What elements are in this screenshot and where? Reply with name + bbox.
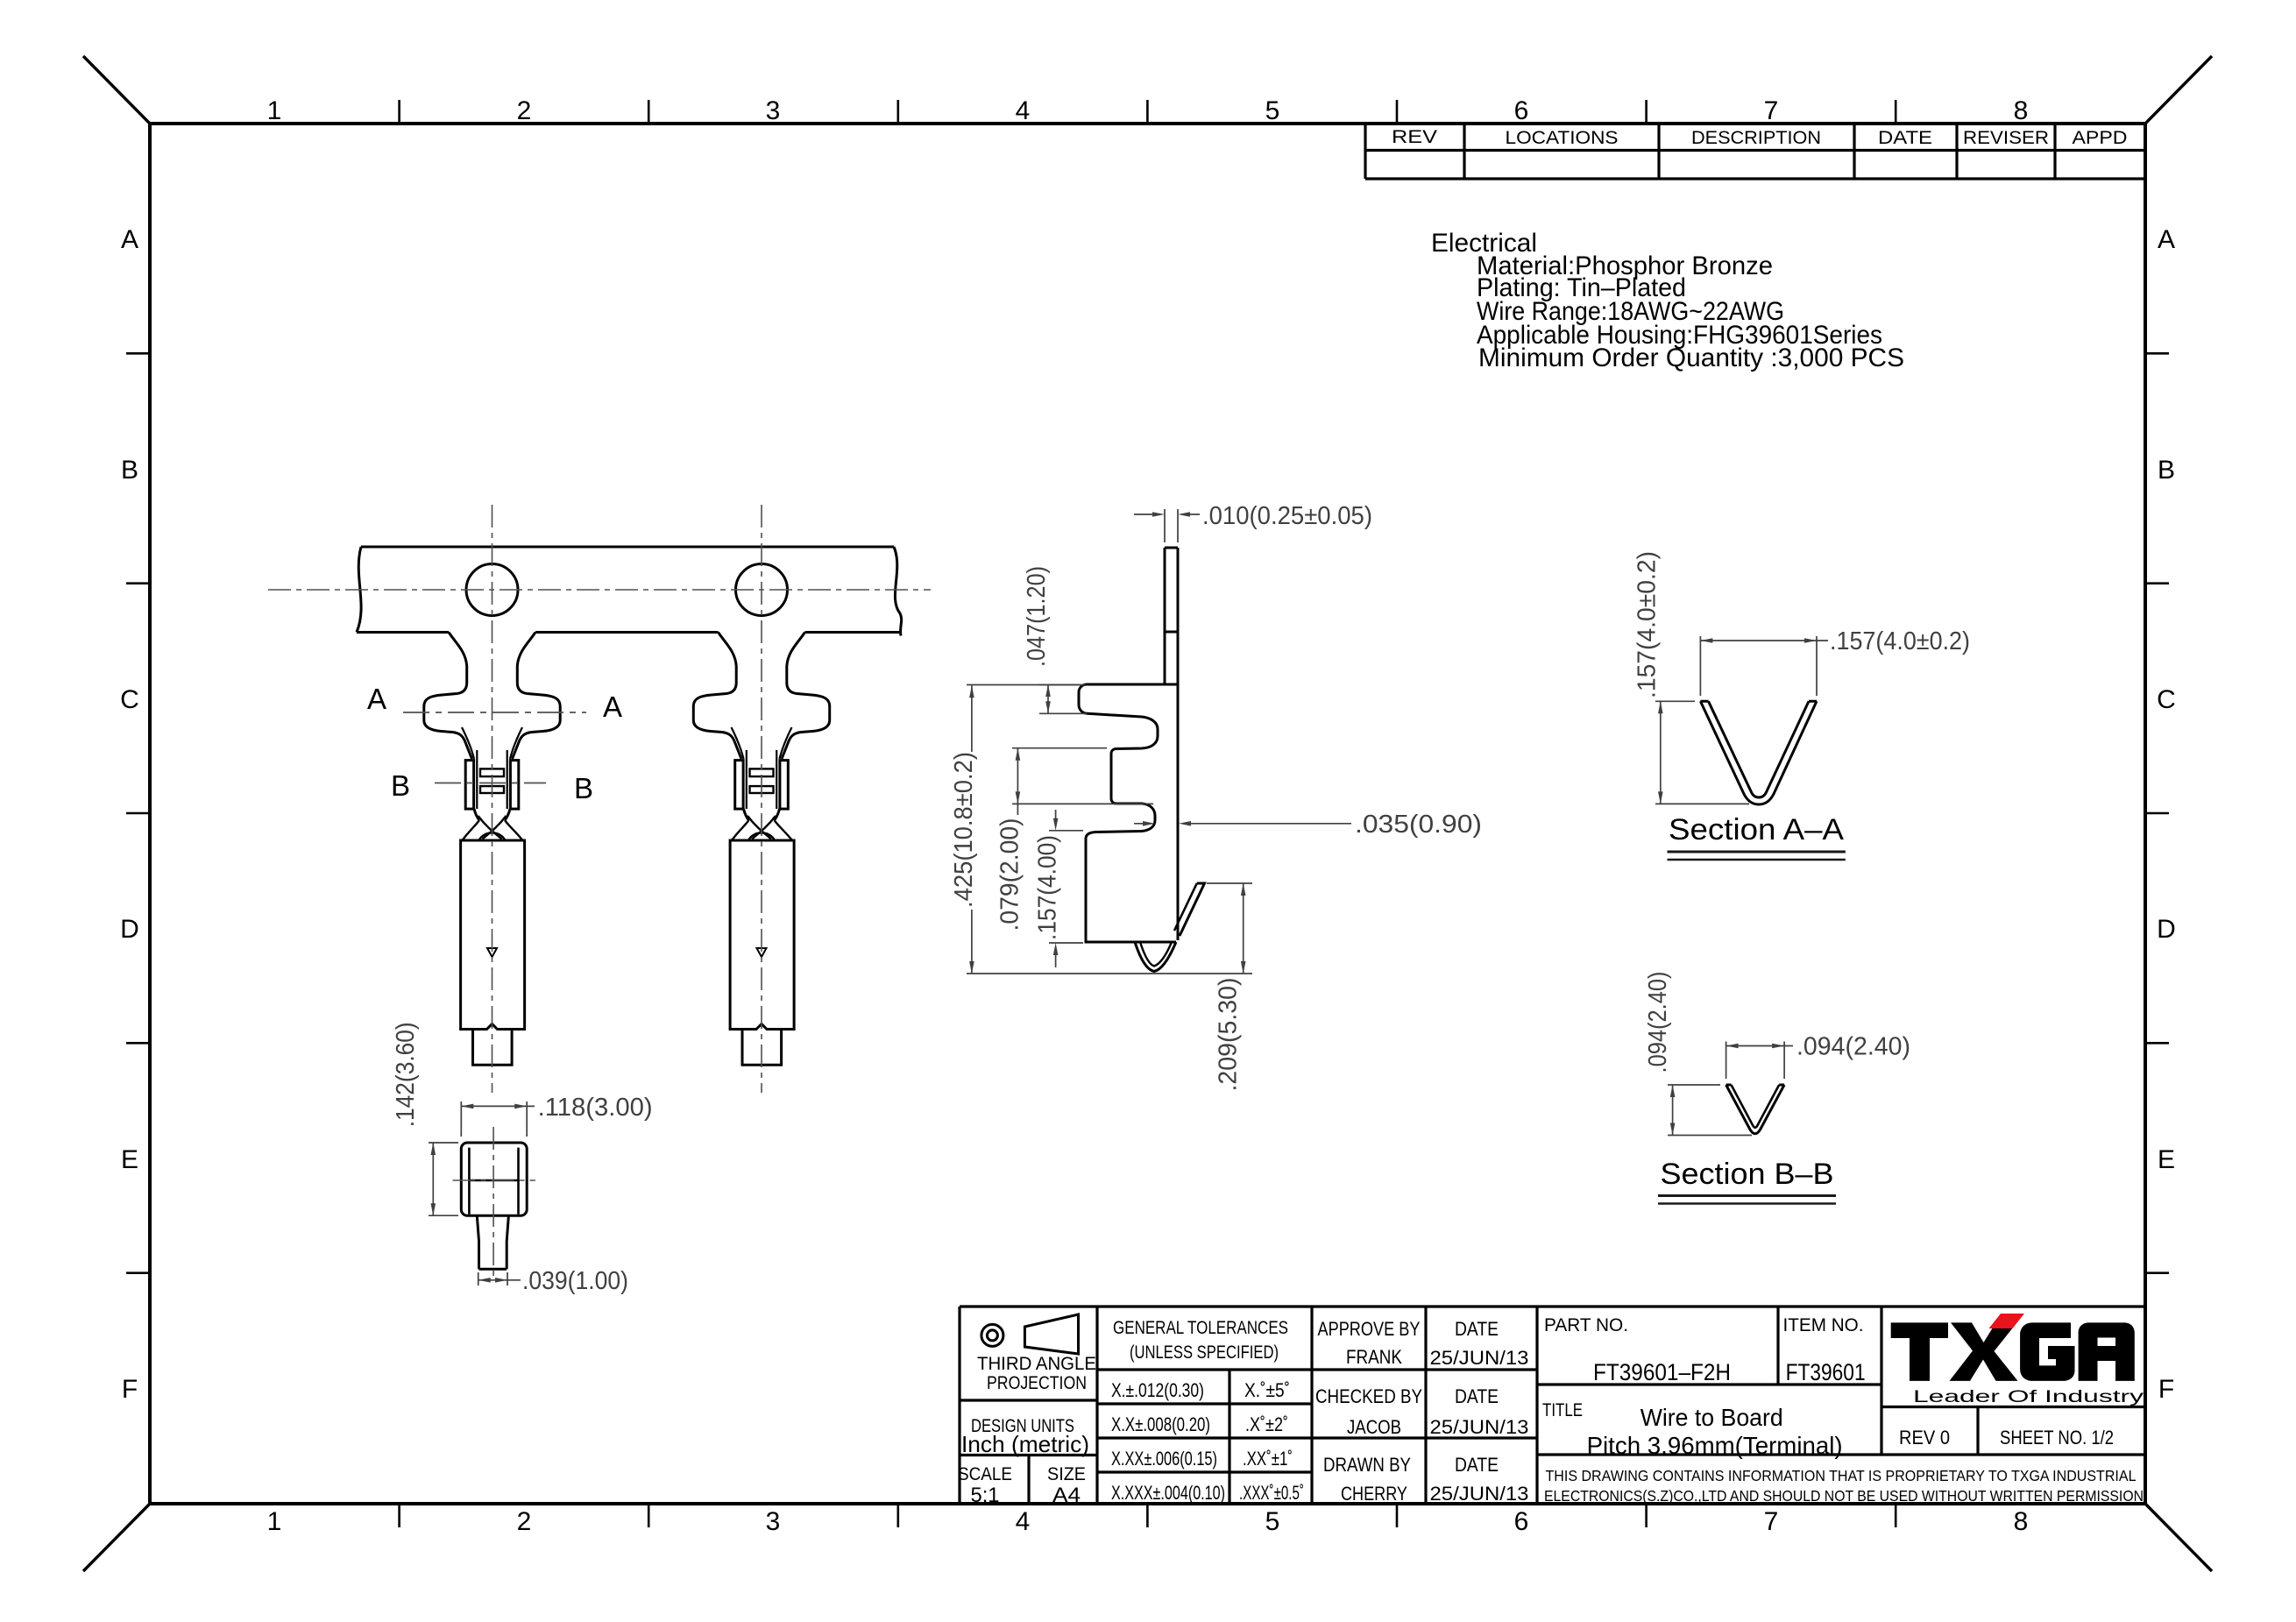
svg-text:ELECTRONICS(S.Z)CO.,LTD AND SH: ELECTRONICS(S.Z)CO.,LTD AND SHOULD NOT B… bbox=[1544, 1487, 2144, 1505]
svg-text:SCALE: SCALE bbox=[958, 1464, 1012, 1484]
svg-text:3: 3 bbox=[766, 96, 781, 125]
svg-text:SHEET NO. 1/2: SHEET NO. 1/2 bbox=[2000, 1427, 2114, 1448]
svg-text:25/JUN/13: 25/JUN/13 bbox=[1430, 1416, 1529, 1438]
svg-text:JACOB: JACOB bbox=[1347, 1416, 1401, 1438]
svg-text:2: 2 bbox=[517, 1507, 532, 1536]
svg-text:A: A bbox=[367, 683, 386, 715]
svg-text:8: 8 bbox=[2014, 1507, 2029, 1536]
svg-text:FT39601–F2H: FT39601–F2H bbox=[1593, 1359, 1731, 1385]
svg-text:.079(2.00): .079(2.00) bbox=[996, 818, 1024, 931]
svg-text:APPD: APPD bbox=[2073, 128, 2128, 148]
svg-text:Wire to Board: Wire to Board bbox=[1641, 1404, 1783, 1431]
svg-text:X.X±.008(0.20): X.X±.008(0.20) bbox=[1111, 1413, 1210, 1435]
svg-text:C: C bbox=[2157, 685, 2176, 714]
svg-text:FRANK: FRANK bbox=[1346, 1346, 1402, 1368]
svg-text:X.XXX±.004(0.10): X.XXX±.004(0.10) bbox=[1111, 1482, 1225, 1504]
svg-text:.010(0.25±0.05): .010(0.25±0.05) bbox=[1202, 502, 1372, 530]
svg-text:.157(4.00): .157(4.00) bbox=[1034, 835, 1062, 940]
svg-text:1: 1 bbox=[267, 96, 282, 125]
svg-text:REV 0: REV 0 bbox=[1899, 1427, 1950, 1448]
svg-text:LOCATIONS: LOCATIONS bbox=[1506, 128, 1619, 148]
svg-text:6: 6 bbox=[1514, 96, 1529, 125]
svg-text:DATE: DATE bbox=[1455, 1318, 1499, 1340]
svg-text:FT39601: FT39601 bbox=[1786, 1359, 1866, 1385]
svg-text:.039(1.00): .039(1.00) bbox=[522, 1267, 628, 1295]
svg-text:B: B bbox=[574, 772, 593, 804]
svg-text:.094(2.40): .094(2.40) bbox=[1796, 1033, 1910, 1061]
svg-text:Section B–B: Section B–B bbox=[1661, 1158, 1834, 1191]
svg-text:DATE: DATE bbox=[1455, 1385, 1499, 1407]
svg-text:25/JUN/13: 25/JUN/13 bbox=[1430, 1483, 1529, 1505]
svg-text:.X˚±2˚: .X˚±2˚ bbox=[1245, 1413, 1288, 1435]
svg-text:A4: A4 bbox=[1052, 1484, 1081, 1507]
svg-text:GENERAL TOLERANCES: GENERAL TOLERANCES bbox=[1113, 1318, 1288, 1338]
svg-text:2: 2 bbox=[517, 96, 532, 125]
svg-text:APPROVE BY: APPROVE BY bbox=[1318, 1318, 1421, 1340]
svg-text:.047(1.20): .047(1.20) bbox=[1023, 566, 1051, 667]
svg-text:A: A bbox=[121, 225, 138, 254]
svg-text:A: A bbox=[603, 691, 622, 723]
svg-text:1: 1 bbox=[267, 1507, 282, 1536]
svg-text:REV: REV bbox=[1392, 127, 1437, 147]
svg-text:PART NO.: PART NO. bbox=[1544, 1315, 1628, 1335]
svg-text:Leader Of Industry: Leader Of Industry bbox=[1913, 1388, 2144, 1406]
svg-text:DESCRIPTION: DESCRIPTION bbox=[1691, 128, 1821, 148]
svg-text:E: E bbox=[2158, 1145, 2175, 1174]
svg-text:.425(10.8±0.2): .425(10.8±0.2) bbox=[950, 752, 978, 908]
svg-text:CHECKED BY: CHECKED BY bbox=[1315, 1385, 1422, 1407]
svg-text:REVISER: REVISER bbox=[1963, 128, 2049, 148]
svg-text:4: 4 bbox=[1016, 96, 1031, 125]
svg-text:.142(3.60): .142(3.60) bbox=[392, 1022, 420, 1127]
svg-text:.209(5.30): .209(5.30) bbox=[1215, 978, 1243, 1092]
svg-text:Minimum Order Quantity :3,000: Minimum Order Quantity :3,000 PCS bbox=[1478, 344, 1904, 372]
svg-text:.157(4.0±0.2): .157(4.0±0.2) bbox=[1830, 627, 1970, 655]
svg-text:25/JUN/13: 25/JUN/13 bbox=[1430, 1347, 1529, 1369]
svg-text:8: 8 bbox=[2014, 96, 2029, 125]
svg-text:D: D bbox=[2157, 915, 2176, 944]
svg-text:DATE: DATE bbox=[1878, 128, 1932, 148]
svg-text:3: 3 bbox=[766, 1507, 781, 1536]
svg-text:THIRD ANGLE: THIRD ANGLE bbox=[977, 1354, 1096, 1374]
svg-text:THIS DRAWING CONTAINS INFORMAT: THIS DRAWING CONTAINS INFORMATION THAT I… bbox=[1546, 1467, 2137, 1484]
svg-text:X.XX±.006(0.15): X.XX±.006(0.15) bbox=[1111, 1448, 1217, 1470]
svg-text:B: B bbox=[2158, 456, 2175, 485]
svg-text:4: 4 bbox=[1016, 1507, 1031, 1536]
svg-text:(UNLESS SPECIFIED): (UNLESS SPECIFIED) bbox=[1130, 1342, 1279, 1363]
svg-text:B: B bbox=[121, 456, 138, 485]
svg-text:D: D bbox=[120, 915, 139, 944]
svg-text:.157(4.0±0.2): .157(4.0±0.2) bbox=[1633, 551, 1662, 698]
svg-text:7: 7 bbox=[1764, 1507, 1779, 1536]
svg-text:CHERRY: CHERRY bbox=[1341, 1483, 1407, 1505]
svg-text:.118(3.00): .118(3.00) bbox=[538, 1094, 653, 1122]
svg-text:X.±.012(0.30): X.±.012(0.30) bbox=[1111, 1379, 1204, 1401]
svg-text:C: C bbox=[120, 685, 139, 714]
svg-text:Pitch 3.96mm(Terminal): Pitch 3.96mm(Terminal) bbox=[1587, 1432, 1843, 1459]
svg-text:DRAWN BY: DRAWN BY bbox=[1323, 1454, 1411, 1476]
svg-text:ITEM NO.: ITEM NO. bbox=[1783, 1315, 1864, 1335]
svg-text:B: B bbox=[391, 769, 410, 802]
svg-text:A: A bbox=[2158, 225, 2175, 254]
svg-text:.XX˚±1˚: .XX˚±1˚ bbox=[1243, 1448, 1293, 1470]
svg-text:7: 7 bbox=[1764, 96, 1779, 125]
svg-text:.035(0.90): .035(0.90) bbox=[1355, 811, 1482, 839]
svg-text:.XXX˚±0.5˚: .XXX˚±0.5˚ bbox=[1239, 1482, 1304, 1504]
svg-text:.094(2.40): .094(2.40) bbox=[1644, 972, 1672, 1073]
svg-text:PROJECTION: PROJECTION bbox=[987, 1373, 1087, 1393]
svg-text:F: F bbox=[2158, 1375, 2174, 1404]
svg-text:DATE: DATE bbox=[1455, 1454, 1499, 1476]
svg-text:SIZE: SIZE bbox=[1047, 1464, 1086, 1484]
svg-text:5:1: 5:1 bbox=[971, 1484, 1000, 1507]
svg-text:Section A–A: Section A–A bbox=[1669, 813, 1844, 846]
svg-text:X.˚±5˚: X.˚±5˚ bbox=[1244, 1379, 1290, 1401]
svg-text:TITLE: TITLE bbox=[1542, 1400, 1583, 1420]
svg-text:E: E bbox=[121, 1145, 138, 1174]
svg-text:Inch (metric): Inch (metric) bbox=[961, 1431, 1089, 1457]
svg-text:5: 5 bbox=[1265, 1507, 1280, 1536]
svg-text:5: 5 bbox=[1265, 96, 1280, 125]
svg-text:F: F bbox=[122, 1375, 138, 1404]
svg-text:6: 6 bbox=[1514, 1507, 1529, 1536]
